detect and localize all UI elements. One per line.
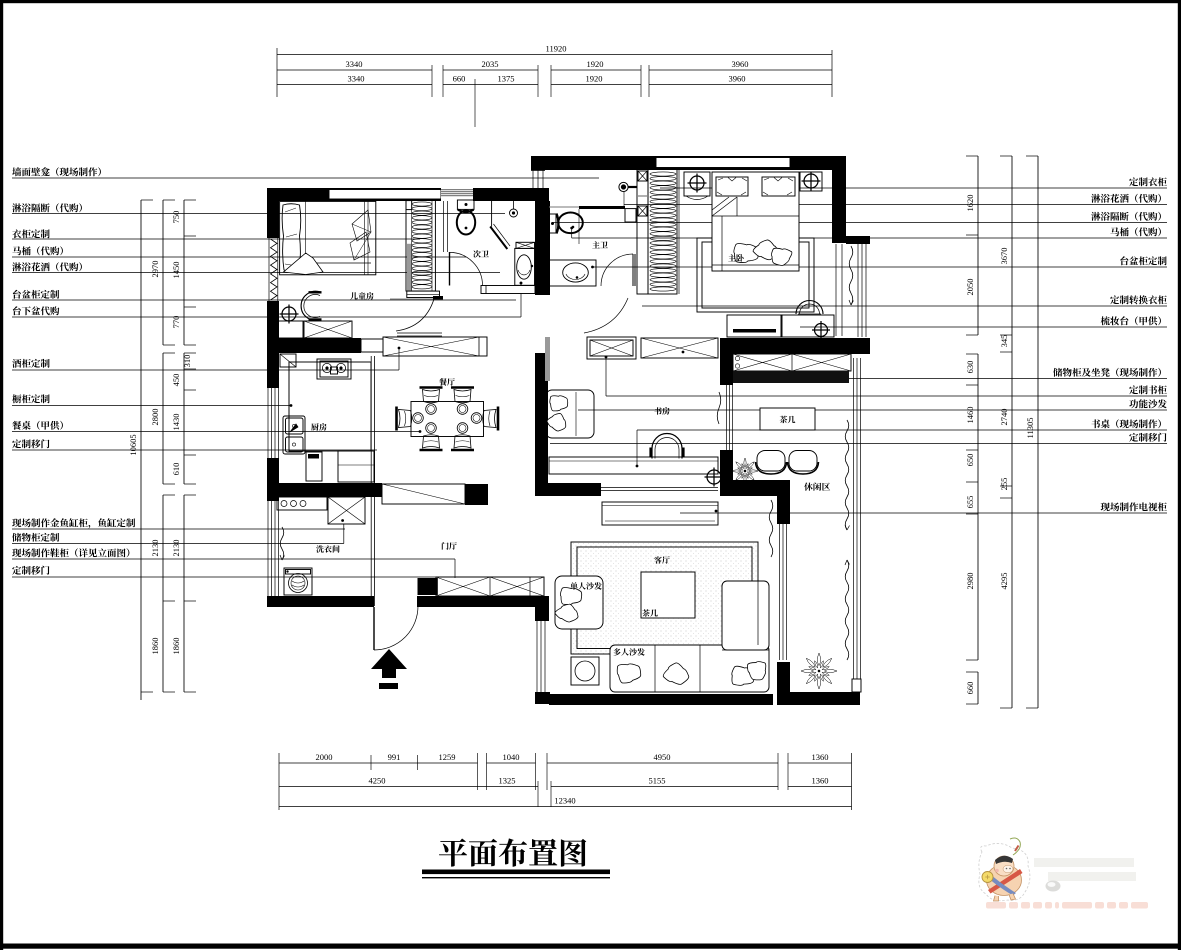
svg-text:2800: 2800 — [150, 409, 160, 426]
svg-text:1430: 1430 — [171, 414, 181, 431]
svg-text:2970: 2970 — [150, 261, 160, 278]
svg-text:3960: 3960 — [729, 74, 746, 84]
svg-text:2035: 2035 — [482, 59, 499, 69]
svg-text:1360: 1360 — [812, 752, 829, 762]
svg-text:2130: 2130 — [171, 540, 181, 557]
svg-text:3670: 3670 — [999, 248, 1009, 265]
svg-text:2740: 2740 — [999, 409, 1009, 426]
svg-text:5155: 5155 — [649, 776, 666, 786]
svg-text:2980: 2980 — [965, 573, 975, 590]
svg-text:1920: 1920 — [586, 74, 603, 84]
svg-text:1325: 1325 — [499, 776, 516, 786]
svg-text:1375: 1375 — [498, 74, 515, 84]
svg-text:1460: 1460 — [965, 407, 975, 424]
svg-text:310: 310 — [182, 355, 192, 368]
svg-text:11920: 11920 — [546, 44, 567, 54]
svg-text:991: 991 — [388, 752, 401, 762]
svg-text:3340: 3340 — [346, 59, 363, 69]
svg-text:12340: 12340 — [554, 796, 575, 806]
svg-text:750: 750 — [171, 211, 181, 224]
svg-text:11305: 11305 — [1025, 418, 1035, 439]
svg-text:770: 770 — [171, 316, 181, 329]
svg-text:655: 655 — [965, 496, 975, 509]
svg-text:1920: 1920 — [587, 59, 604, 69]
svg-text:4950: 4950 — [654, 752, 671, 762]
svg-text:1860: 1860 — [150, 638, 160, 655]
svg-text:345: 345 — [999, 335, 1009, 348]
svg-text:3340: 3340 — [348, 74, 365, 84]
svg-text:1360: 1360 — [812, 776, 829, 786]
svg-text:660: 660 — [453, 74, 466, 84]
svg-text:1860: 1860 — [171, 638, 181, 655]
svg-text:3960: 3960 — [732, 59, 749, 69]
svg-text:2000: 2000 — [316, 752, 333, 762]
svg-text:10605: 10605 — [128, 434, 138, 455]
svg-text:450: 450 — [171, 374, 181, 387]
svg-text:4295: 4295 — [999, 573, 1009, 590]
svg-text:4250: 4250 — [369, 776, 386, 786]
svg-text:660: 660 — [965, 682, 975, 695]
svg-text:1040: 1040 — [503, 752, 520, 762]
svg-text:1450: 1450 — [171, 262, 181, 279]
svg-text:630: 630 — [965, 361, 975, 374]
svg-text:1259: 1259 — [439, 752, 456, 762]
svg-text:1620: 1620 — [965, 195, 975, 212]
svg-text:610: 610 — [171, 463, 181, 476]
svg-text:650: 650 — [965, 454, 975, 467]
svg-text:2050: 2050 — [965, 279, 975, 296]
svg-text:255: 255 — [999, 478, 1009, 491]
svg-text:2130: 2130 — [150, 540, 160, 557]
